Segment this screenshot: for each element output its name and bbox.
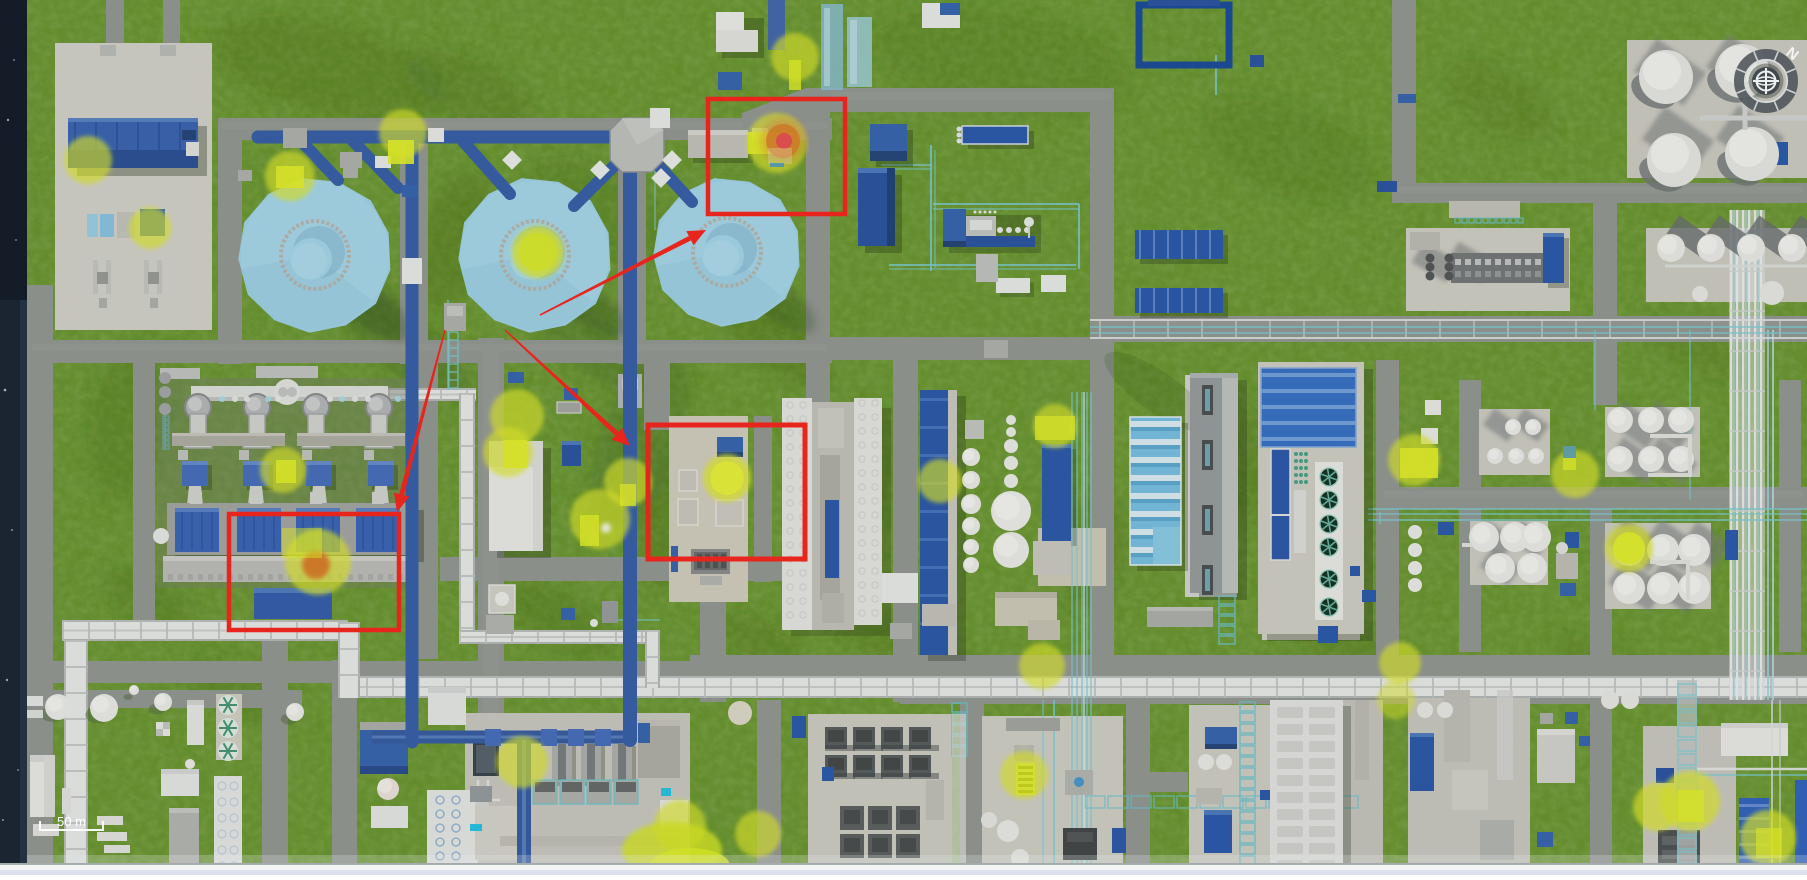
svg-text:50 m: 50 m [57,814,86,829]
